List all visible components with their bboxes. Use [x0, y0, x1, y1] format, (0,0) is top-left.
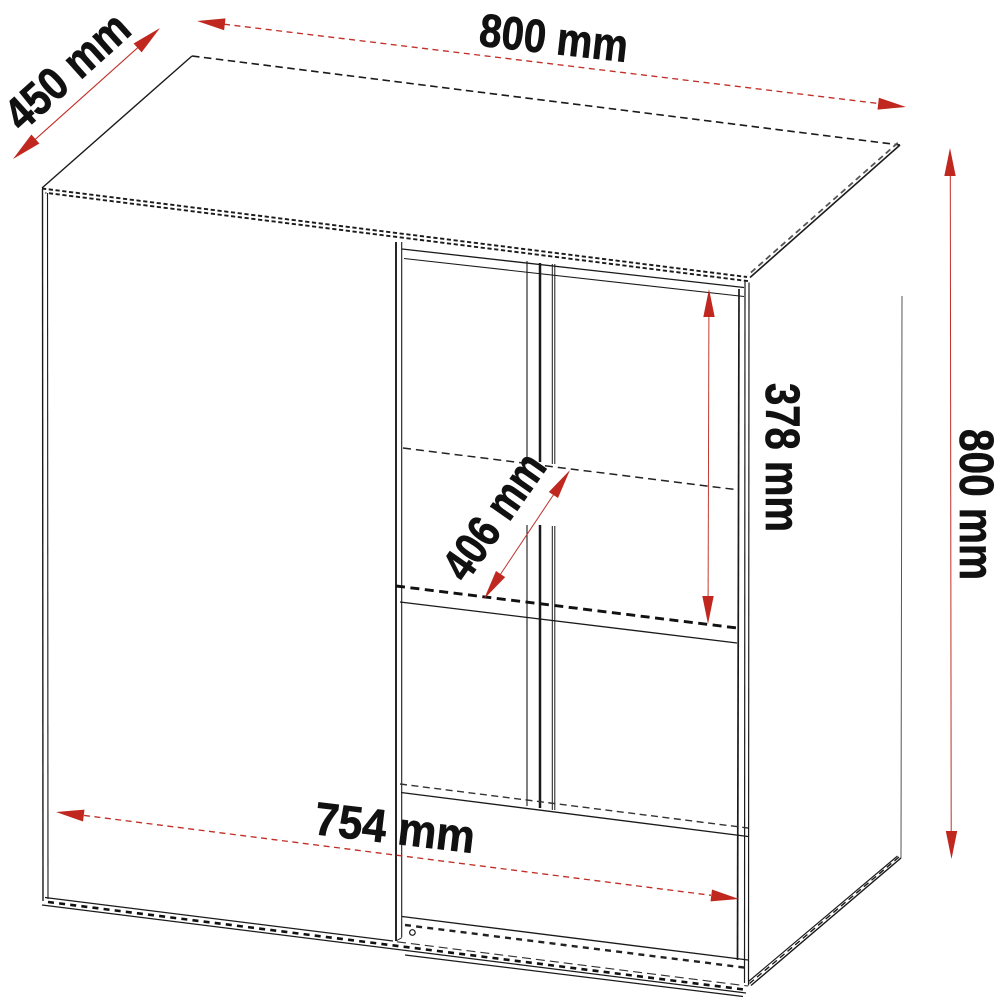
svg-text:378 mm: 378 mm — [755, 383, 809, 532]
svg-text:800 mm: 800 mm — [949, 429, 1000, 580]
